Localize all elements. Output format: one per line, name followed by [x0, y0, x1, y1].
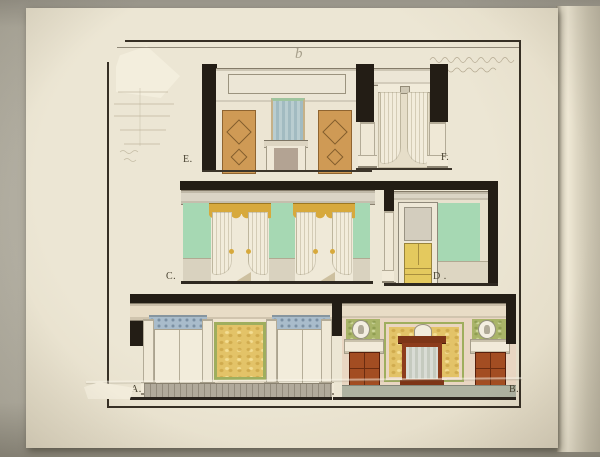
floor-slab-band — [180, 181, 498, 190]
wall-section-bar — [202, 64, 217, 172]
lozenge-motif — [327, 149, 344, 166]
curtain-tieback — [246, 249, 251, 254]
plate-label-c: C. — [166, 271, 176, 282]
plate-label-b: B. — [509, 384, 519, 395]
pilaster — [384, 211, 394, 283]
curtain-left — [212, 212, 232, 275]
curtain-tieback — [330, 249, 335, 254]
frame-top-inner-rule — [117, 47, 521, 48]
curtain-left — [296, 212, 316, 275]
adjacent-sheet-edge — [556, 6, 600, 452]
elevation-b-floor-line — [333, 397, 516, 400]
window-bay — [295, 203, 353, 282]
frame-top-rule — [125, 40, 521, 42]
frame-left-rule — [107, 62, 109, 408]
pilaster — [360, 122, 375, 168]
elevation-d-floor-line — [384, 283, 498, 286]
elevation-c-floor-line — [181, 281, 373, 284]
lozenge-motif — [226, 119, 251, 144]
wall-section-bar — [430, 64, 448, 122]
door-yellow — [404, 243, 432, 284]
floor-slab-band — [130, 294, 516, 303]
wall-section-bar — [488, 181, 498, 285]
elevation-e-floor-line — [202, 170, 372, 172]
cameo-medallion — [352, 320, 370, 339]
fireplace-opening — [274, 148, 298, 172]
frame-right-rule — [519, 40, 521, 408]
elevation-a-floor-line — [130, 397, 332, 400]
frame-bottom-rule — [107, 406, 521, 408]
curtain-right — [332, 212, 352, 275]
pencil-mark: b — [295, 46, 303, 63]
curtain-tieback — [313, 249, 318, 254]
lozenge-motif — [322, 119, 347, 144]
door-right-lozenge — [318, 110, 352, 174]
window-bay — [211, 203, 269, 282]
elevation-f-floor-line — [356, 168, 452, 170]
cameo-medallion — [478, 320, 496, 339]
plate-label-e: E. — [183, 154, 193, 165]
pencil-sketch — [110, 86, 182, 168]
panel-field — [217, 325, 263, 377]
curtain-right — [248, 212, 268, 275]
curtain-tieback — [229, 249, 234, 254]
wall-section-bar — [332, 294, 342, 336]
curtain-left — [380, 92, 401, 164]
wall-panel-yellow — [214, 322, 266, 380]
lozenge-motif — [231, 149, 248, 166]
elevation-d-wall-green — [438, 203, 480, 261]
door-left-lozenge — [222, 110, 256, 174]
plate-label-f: F. — [441, 152, 449, 163]
curtain-right — [407, 92, 428, 164]
elevation-a-dado — [144, 383, 332, 398]
alcove — [378, 84, 430, 168]
doorway-opening — [154, 329, 204, 385]
wall-section-bar — [384, 181, 394, 211]
overdoor-panel — [404, 207, 432, 241]
wall-section-bar — [506, 294, 516, 344]
wall-section-bar — [356, 64, 374, 122]
elevation-e-frieze-panel — [228, 74, 346, 94]
plate-label-d: D . — [433, 271, 447, 282]
scanned-drawing-photo: b E. F. — [0, 0, 600, 457]
chimney-mirror — [406, 347, 438, 379]
doorway-opening — [277, 329, 327, 385]
